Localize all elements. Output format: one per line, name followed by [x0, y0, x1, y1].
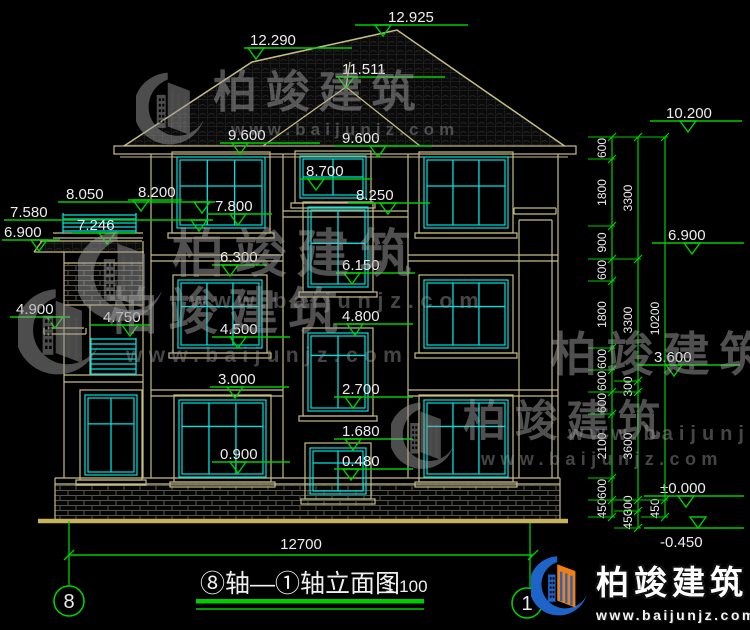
- elevation-drawing: 12.92512.29011.5119.6009.6008.7008.2507.…: [0, 0, 750, 630]
- drawing-title: ⑧轴—①轴立面图: [200, 570, 400, 598]
- elevation-marker-text: 3.000: [218, 371, 256, 388]
- elevation-marker-text: 4.800: [342, 308, 380, 325]
- dimension-text: 600: [595, 349, 609, 369]
- elevation-marker-text: 12.290: [250, 32, 296, 49]
- elevation-marker-text: 10.200: [666, 105, 712, 122]
- elevation-marker-text: 6.300: [220, 249, 258, 266]
- dimension-text: 300: [621, 376, 635, 396]
- elevation-marker-text: ±0.000: [660, 480, 706, 497]
- elevation-marker-text: 6.900: [668, 227, 706, 244]
- elevation-marker-text: 0.480: [342, 453, 380, 470]
- company-logo: 柏竣建筑 www.baijunjz.com: [531, 554, 750, 625]
- dimension-text: 10200: [648, 301, 662, 335]
- dimension-text: 600: [595, 371, 609, 391]
- elevation-marker-text: 1.680: [342, 423, 380, 440]
- dimension-text: 3600: [621, 432, 635, 459]
- elevation-marker-text: 4.750: [103, 309, 141, 326]
- elevation-marker-text: 6.900: [4, 224, 42, 241]
- cad-drawing-canvas: 12.92512.29011.5119.6009.6008.7008.2507.…: [0, 0, 750, 630]
- company-logo-url: www.baijunjz.com: [596, 607, 750, 623]
- title-underline-thick: [196, 599, 424, 604]
- elevation-marker-text: 8.700: [306, 163, 344, 180]
- overall-width-dimension: 12700: [280, 536, 322, 553]
- builder-logo-glyph: [531, 554, 588, 620]
- elevation-marker-text: 9.600: [228, 127, 266, 144]
- dimension-text: 450: [595, 498, 609, 518]
- drawing-scale: 1:100: [385, 577, 428, 596]
- elevation-marker-text: 8.250: [356, 187, 394, 204]
- building-geometry: [34, 30, 576, 521]
- dimension-text: 1800: [595, 301, 609, 328]
- company-logo-name: 柏竣建筑: [596, 556, 750, 604]
- dimension-text: 2100: [595, 432, 609, 459]
- elevation-marker-text: 7.246: [77, 217, 115, 234]
- dimension-text: 600: [595, 260, 609, 280]
- elevation-marker-text: 4.500: [220, 321, 258, 338]
- elevation-marker-text: 2.700: [342, 381, 380, 398]
- dimension-text: 450: [621, 509, 635, 529]
- dimension-text: 1800: [595, 179, 609, 206]
- dimension-text: 900: [595, 232, 609, 252]
- elevation-marker-text: 7.800: [215, 198, 253, 215]
- elevation-marker-text: 6.150: [342, 257, 380, 274]
- dimension-text: 450: [648, 498, 662, 518]
- elevation-marker-text: 3.600: [654, 349, 692, 366]
- dimension-text: 600: [595, 138, 609, 158]
- elevation-marker-text: 11.511: [342, 61, 386, 78]
- elevation-marker-text: 8.050: [66, 186, 104, 203]
- dimension-text: 600: [595, 393, 609, 413]
- elevation-marker-text: 0.900: [220, 446, 258, 463]
- elevation-marker-text: 8.200: [138, 184, 176, 201]
- dimension-text: 3300: [621, 184, 635, 211]
- company-logo-icon: [531, 554, 588, 625]
- elevation-marker-text: 12.925: [388, 9, 434, 26]
- dimension-text: 600: [595, 479, 609, 499]
- elevation-marker-text: 4.900: [16, 301, 54, 318]
- elevation-marker-text: 9.600: [342, 130, 380, 147]
- axis-number: 8: [63, 591, 74, 613]
- dimension-text: 3300: [621, 306, 635, 333]
- elevation-marker-text: -0.450: [660, 534, 703, 551]
- axis-bubble-8: 8: [54, 521, 84, 616]
- elevation-marker-text: 7.580: [10, 204, 48, 221]
